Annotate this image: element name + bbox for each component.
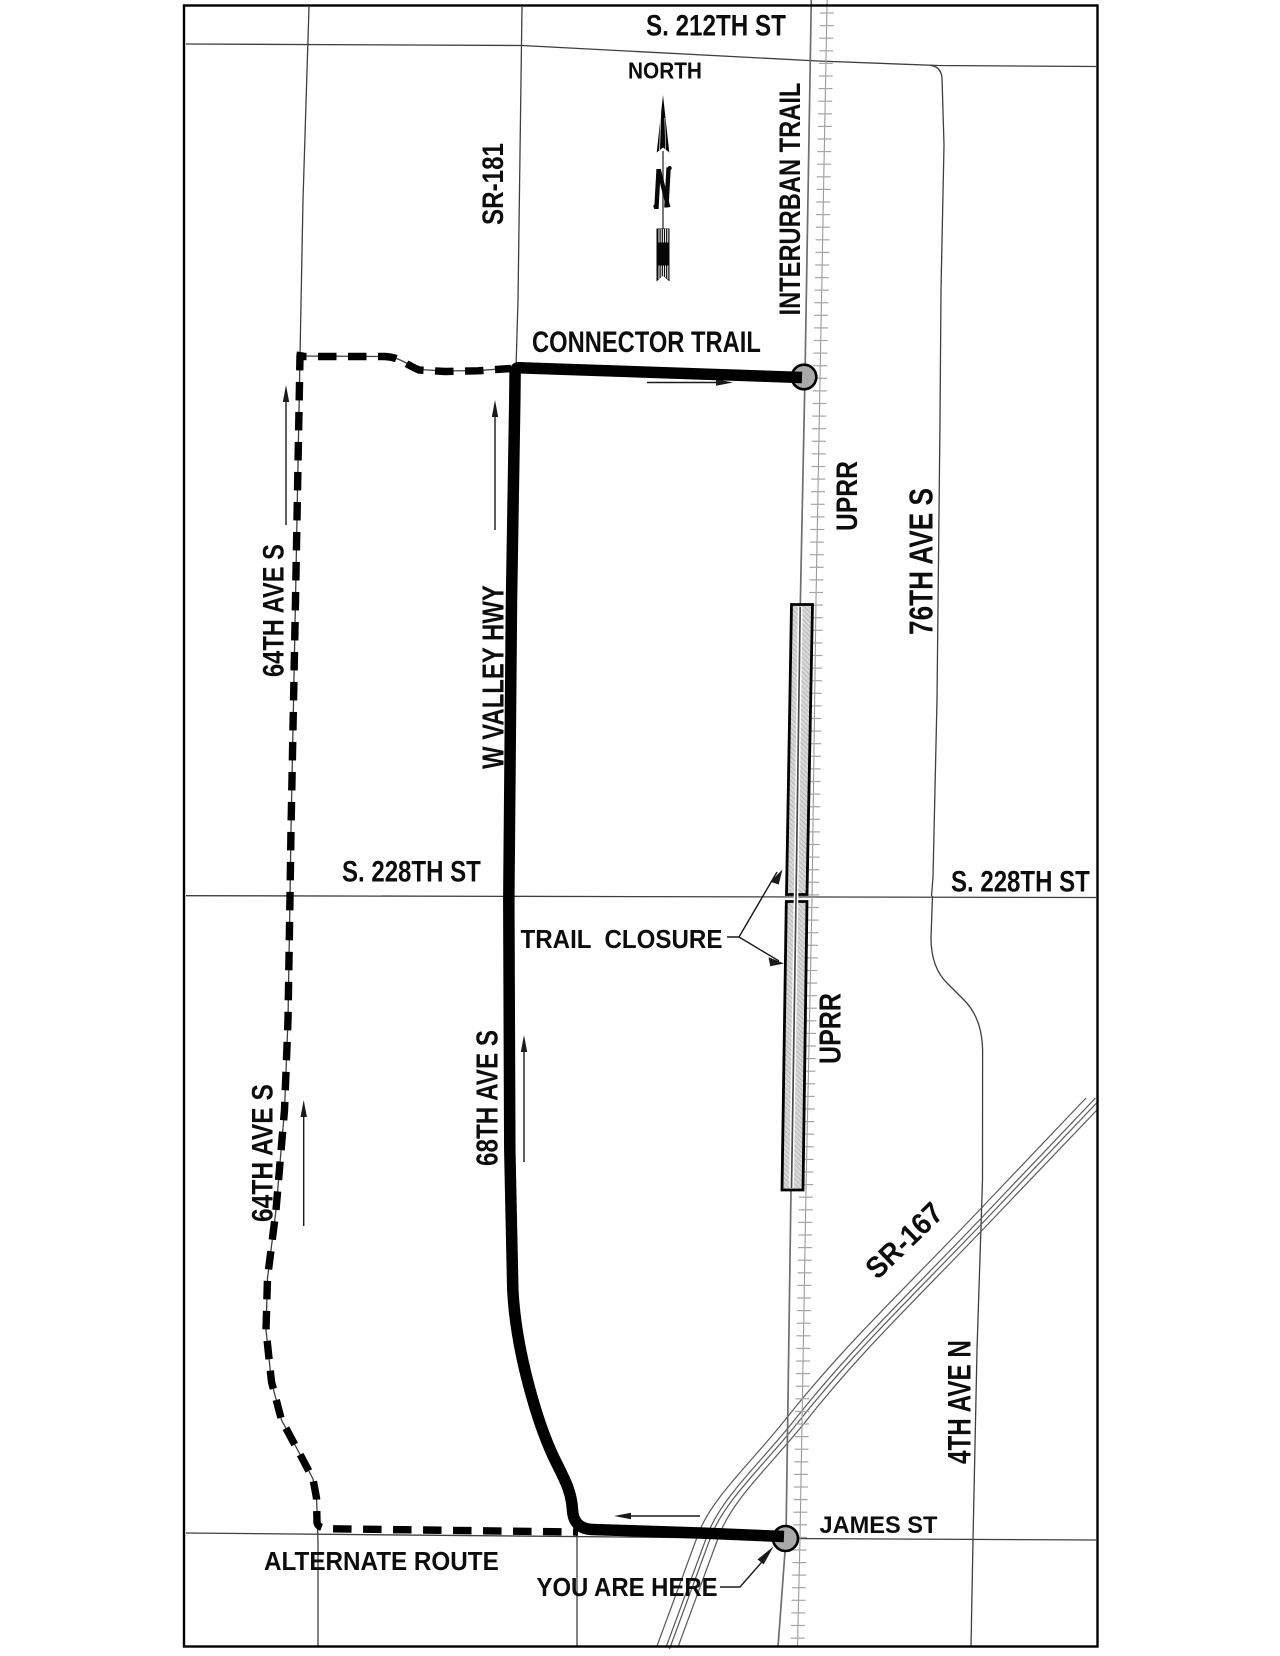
svg-text:W VALLEY HWY: W VALLEY HWY (476, 585, 511, 769)
svg-text:SR-181: SR-181 (475, 143, 509, 225)
svg-text:YOU ARE HERE: YOU ARE HERE (537, 1573, 718, 1602)
svg-text:TRAIL CLOSURE: TRAIL CLOSURE (521, 925, 723, 954)
svg-text:JAMES ST: JAMES ST (820, 1512, 938, 1539)
svg-text:INTERURBAN TRAIL: INTERURBAN TRAIL (773, 83, 806, 316)
svg-text:76TH AVE S: 76TH AVE S (904, 488, 941, 635)
svg-text:S. 228TH ST: S. 228TH ST (342, 854, 481, 888)
svg-text:UPRR: UPRR (830, 461, 864, 531)
svg-text:S. 228TH ST: S. 228TH ST (951, 864, 1090, 898)
svg-text:CONNECTOR TRAIL: CONNECTOR TRAIL (532, 325, 761, 358)
svg-text:NORTH: NORTH (628, 58, 702, 84)
svg-text:64TH AVE S: 64TH AVE S (257, 544, 290, 677)
svg-text:4TH AVE N: 4TH AVE N (942, 1340, 978, 1464)
svg-text:ALTERNATE ROUTE: ALTERNATE ROUTE (264, 1547, 499, 1576)
svg-text:64TH AVE S: 64TH AVE S (245, 1084, 279, 1222)
svg-text:68TH AVE S: 68TH AVE S (470, 1030, 505, 1166)
svg-text:S. 212TH ST: S. 212TH ST (646, 8, 786, 42)
svg-text:UPRR: UPRR (812, 993, 847, 1064)
